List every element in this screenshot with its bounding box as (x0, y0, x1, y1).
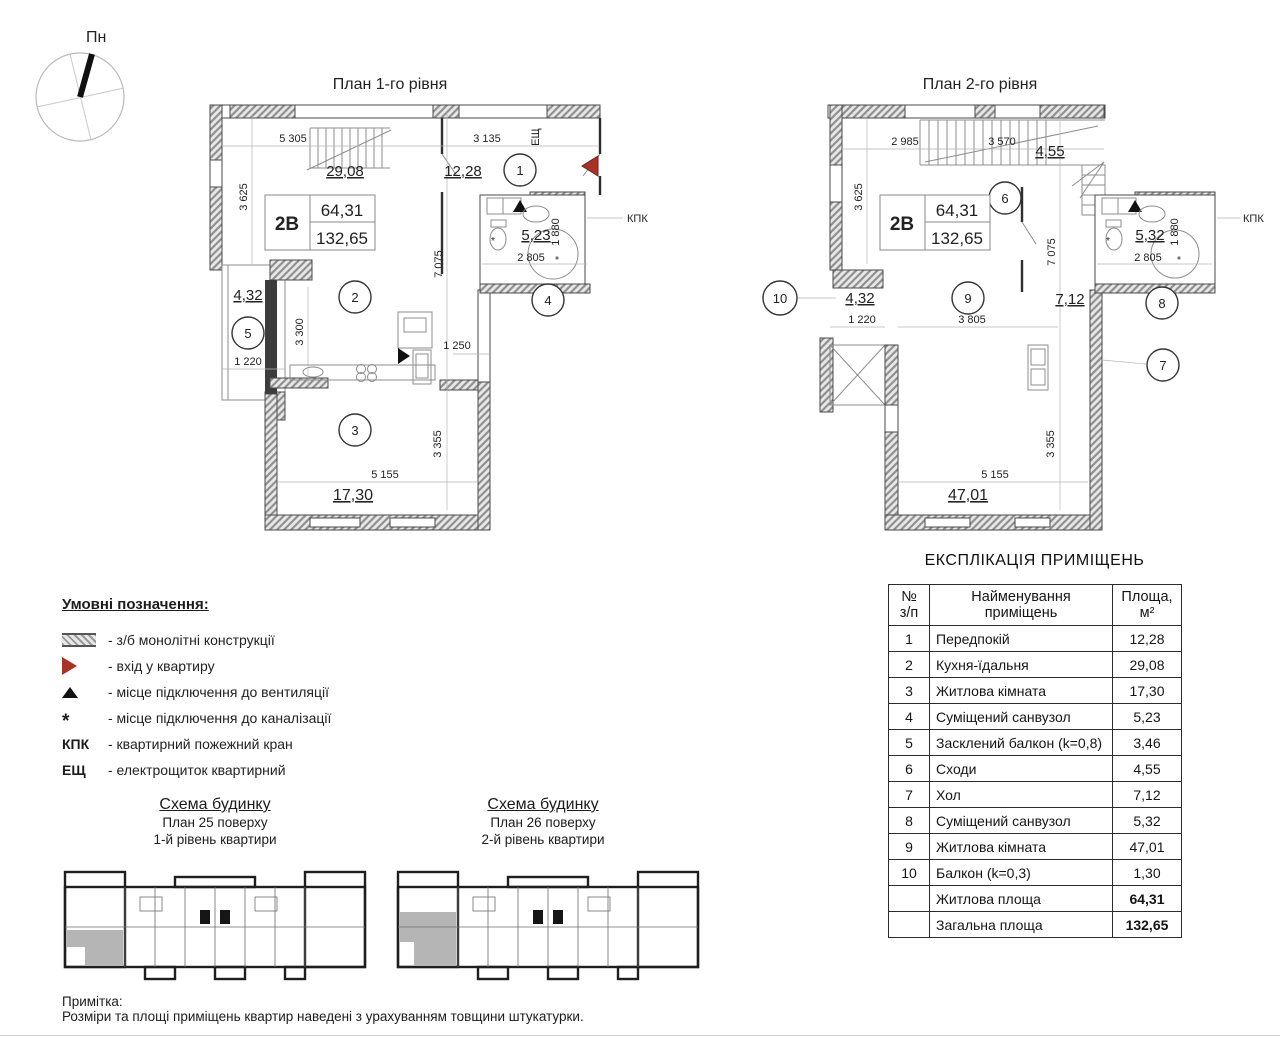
svg-text:1 250: 1 250 (443, 340, 471, 352)
legend-item: - місце підключення до вентиляції (62, 679, 402, 705)
legend: Умовні позначення: - з/б монолітні конст… (62, 596, 402, 783)
table-row: 8Суміщений санвузол5,32 (889, 808, 1182, 834)
legend-item: * - місце підключення до каналізації (62, 705, 402, 731)
stair-core (200, 910, 210, 924)
fridge-icon (398, 312, 432, 348)
drain-icon (1177, 256, 1180, 259)
svg-text:3 625: 3 625 (238, 183, 250, 211)
svg-text:7,12: 7,12 (1055, 291, 1084, 308)
svg-text:5: 5 (244, 326, 251, 341)
plan2-wardrobe (1028, 345, 1048, 390)
plan2-drawing: * 2 985 3 570 4,55 3 625 7 075 5,32 1 88… (720, 92, 1280, 552)
highlighted-unit (67, 930, 123, 965)
legend-item: ЕЩ - електрощиток квартирний (62, 757, 402, 783)
plan2-unit-info-box: 2В 64,31 132,65 (880, 195, 990, 250)
svg-text:4,55: 4,55 (1035, 143, 1064, 160)
scheme1-drawing (55, 852, 375, 994)
kpk-label: КПК (1243, 213, 1264, 225)
sheet-bottom-edge (0, 1035, 1280, 1036)
living-area-value: 64,31 (321, 201, 364, 220)
stair-core (533, 910, 543, 924)
drain-icon (555, 256, 558, 259)
hatch-wall-icon (62, 633, 96, 647)
svg-text:5 155: 5 155 (981, 469, 1009, 481)
explication-table-wrap: № з/п Найменування приміщень Площа, м² 1… (888, 584, 1182, 938)
scheme1-caption: Схема будинку План 25 поверху 1-й рівень… (90, 796, 340, 848)
sewer-mark: * (1106, 236, 1110, 247)
svg-text:5 155: 5 155 (371, 469, 399, 481)
svg-text:6: 6 (1001, 191, 1008, 206)
compass-needle-icon (80, 54, 92, 97)
table-header-row: № з/п Найменування приміщень Площа, м² (889, 585, 1182, 626)
svg-text:4,32: 4,32 (233, 287, 262, 304)
esh-symbol: ЕЩ (62, 762, 108, 778)
scheme2-drawing (388, 852, 708, 994)
table-row: 10Балкон (k=0,3)1,30 (889, 860, 1182, 886)
table-total-row: Загальна площа132,65 (889, 912, 1182, 938)
stair-core (553, 910, 563, 924)
col-name-header: Найменування приміщень (930, 585, 1113, 626)
col-num-header: № з/п (889, 585, 930, 626)
svg-text:1 220: 1 220 (848, 314, 876, 326)
svg-text:8: 8 (1158, 296, 1165, 311)
kitchen-sink-icon (303, 367, 323, 377)
svg-text:2 985: 2 985 (891, 136, 919, 148)
svg-text:1 880: 1 880 (1169, 218, 1181, 246)
svg-text:2: 2 (351, 290, 358, 305)
table-row: 5Засклений балкон (k=0,8)3,46 (889, 730, 1182, 756)
svg-text:7 075: 7 075 (1046, 238, 1058, 266)
kpk-symbol: КПК (62, 736, 108, 752)
svg-text:29,08: 29,08 (326, 163, 364, 180)
note-title: Примітка: (62, 994, 782, 1009)
floorplan-sheet: { "compass": {"label": "Пн"}, "symbols":… (0, 0, 1280, 1040)
svg-text:3 300: 3 300 (294, 318, 306, 346)
svg-text:1: 1 (516, 163, 523, 178)
compass: Пн (18, 12, 138, 147)
svg-text:3 355: 3 355 (432, 430, 444, 458)
svg-text:5,23: 5,23 (521, 227, 550, 244)
esh-label: ЕЩ (530, 128, 542, 146)
svg-text:3 625: 3 625 (853, 183, 865, 211)
explication-title: ЕКСПЛІКАЦІЯ ПРИМІЩЕНЬ (888, 552, 1181, 570)
table-row: 4Суміщений санвузол5,23 (889, 704, 1182, 730)
table-row: 3Житлова кімната17,30 (889, 678, 1182, 704)
explication-table: № з/п Найменування приміщень Площа, м² 1… (888, 584, 1182, 938)
note-text: Розміри та площі приміщень квартир навед… (62, 1009, 782, 1024)
stair-core (220, 910, 230, 924)
entry-triangle-icon (582, 156, 598, 176)
compass-north-label: Пн (86, 29, 106, 46)
unit-type: 2В (275, 214, 299, 235)
svg-text:4,32: 4,32 (845, 290, 874, 307)
svg-text:3 570: 3 570 (988, 136, 1016, 148)
legend-item: - вхід у квартиру (62, 653, 402, 679)
col-area-header: Площа, м² (1113, 585, 1182, 626)
highlighted-unit (400, 912, 456, 965)
svg-text:7 075: 7 075 (433, 250, 445, 278)
svg-text:3 805: 3 805 (958, 314, 986, 326)
svg-text:5 305: 5 305 (279, 133, 307, 145)
svg-text:17,30: 17,30 (333, 487, 373, 504)
table-row: 2Кухня-їдальня29,08 (889, 652, 1182, 678)
svg-text:5,32: 5,32 (1135, 227, 1164, 244)
legend-heading: Умовні позначення: (62, 596, 402, 613)
sewer-mark-icon: * (62, 711, 69, 726)
table-row: 6Сходи4,55 (889, 756, 1182, 782)
plan1-kitchen (290, 312, 435, 384)
total-area-value: 132,65 (931, 229, 983, 248)
plan1-drawing: * 5 305 3 135 29,08 12,28 3 625 3 300 7 … (195, 92, 665, 552)
table-row: 9Житлова кімната47,01 (889, 834, 1182, 860)
svg-text:2 805: 2 805 (517, 252, 545, 264)
scheme2-caption: Схема будинку План 26 поверху 2-й рівень… (418, 796, 668, 848)
svg-text:3: 3 (351, 423, 358, 438)
svg-text:3 135: 3 135 (473, 133, 501, 145)
table-row: 1Передпокій12,28 (889, 626, 1182, 652)
svg-text:4: 4 (544, 293, 551, 308)
legend-item: КПК - квартирний пожежний кран (62, 731, 402, 757)
svg-text:47,01: 47,01 (948, 487, 988, 504)
legend-item: - з/б монолітні конструкції (62, 627, 402, 653)
svg-text:12,28: 12,28 (444, 163, 482, 180)
table-row: 7Хол7,12 (889, 782, 1182, 808)
vent-triangle-icon (62, 687, 78, 698)
svg-text:1 880: 1 880 (550, 218, 562, 246)
svg-text:3 355: 3 355 (1045, 430, 1057, 458)
living-area-value: 64,31 (936, 201, 979, 220)
sewer-mark: * (491, 236, 495, 247)
svg-text:1 220: 1 220 (234, 356, 262, 368)
svg-text:10: 10 (773, 291, 787, 306)
note: Примітка: Розміри та площі приміщень ква… (62, 994, 782, 1024)
kpk-label: КПК (627, 213, 648, 225)
total-area-value: 132,65 (316, 229, 368, 248)
table-total-row: Житлова площа64,31 (889, 886, 1182, 912)
vent-triangle-icon (398, 348, 410, 364)
entry-triangle-icon (62, 657, 77, 675)
svg-text:9: 9 (964, 291, 971, 306)
unit-type: 2В (890, 214, 914, 235)
svg-text:7: 7 (1159, 358, 1166, 373)
svg-text:2 805: 2 805 (1134, 252, 1162, 264)
plan1-unit-info-box: 2В 64,31 132,65 (265, 195, 375, 250)
